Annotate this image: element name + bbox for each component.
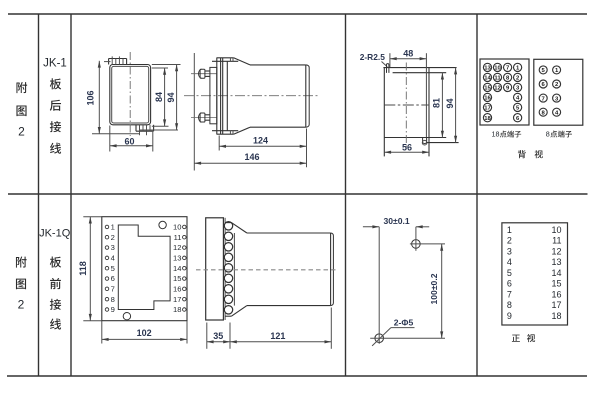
svg-text:11: 11 [552, 236, 561, 246]
svg-text:56: 56 [402, 142, 412, 152]
svg-text:13: 13 [173, 254, 181, 263]
svg-text:1: 1 [111, 223, 115, 232]
svg-text:17: 17 [551, 300, 561, 310]
svg-text:8: 8 [546, 130, 550, 139]
svg-text:8: 8 [507, 300, 512, 310]
svg-text:6: 6 [507, 279, 512, 289]
svg-text:9: 9 [507, 311, 512, 321]
svg-text:7: 7 [507, 289, 512, 299]
svg-text:8: 8 [111, 295, 115, 304]
svg-text:102: 102 [137, 328, 152, 338]
svg-text:JK-1Q: JK-1Q [39, 228, 71, 240]
svg-text:17: 17 [484, 106, 491, 112]
svg-text:17: 17 [173, 295, 181, 304]
svg-text:11: 11 [174, 233, 182, 242]
svg-text:60: 60 [124, 136, 134, 146]
svg-text:10: 10 [494, 66, 501, 72]
svg-text:5: 5 [507, 268, 512, 278]
svg-text:94: 94 [166, 92, 176, 102]
svg-text:100±0.2: 100±0.2 [429, 273, 439, 304]
svg-text:2: 2 [18, 298, 25, 312]
svg-text:15: 15 [173, 274, 181, 283]
svg-text:16: 16 [173, 285, 181, 294]
svg-text:13: 13 [484, 66, 491, 72]
svg-text:146: 146 [244, 152, 259, 162]
svg-text:5: 5 [111, 264, 115, 273]
svg-text:7: 7 [111, 285, 115, 294]
svg-text:16: 16 [484, 96, 491, 102]
svg-text:14: 14 [484, 76, 491, 82]
svg-text:14: 14 [551, 268, 561, 278]
svg-text:81: 81 [432, 98, 442, 108]
svg-text:6: 6 [111, 274, 115, 283]
svg-text:106: 106 [86, 90, 96, 105]
svg-text:11: 11 [494, 76, 501, 82]
svg-text:118: 118 [78, 261, 88, 276]
svg-text:121: 121 [270, 331, 285, 341]
svg-text:18: 18 [551, 311, 561, 321]
svg-text:18: 18 [484, 116, 491, 122]
svg-text:35: 35 [213, 331, 223, 341]
svg-text:4: 4 [507, 257, 512, 267]
svg-text:30±0.1: 30±0.1 [383, 216, 409, 226]
svg-text:18: 18 [173, 305, 181, 314]
svg-text:2: 2 [111, 233, 115, 242]
svg-text:48: 48 [403, 48, 413, 58]
svg-text:84: 84 [154, 92, 164, 102]
svg-text:2-R2.5: 2-R2.5 [360, 52, 385, 62]
svg-text:12: 12 [494, 86, 501, 92]
svg-text:2: 2 [507, 236, 512, 246]
svg-text:16: 16 [551, 289, 561, 299]
svg-text:124: 124 [253, 136, 268, 146]
svg-text:JK-1: JK-1 [43, 58, 67, 70]
svg-text:10: 10 [173, 223, 181, 232]
svg-text:14: 14 [173, 264, 181, 273]
svg-text:3: 3 [507, 246, 512, 256]
svg-text:2-Φ5: 2-Φ5 [394, 317, 414, 327]
svg-text:12: 12 [173, 243, 181, 252]
svg-text:10: 10 [551, 225, 561, 235]
svg-text:1: 1 [507, 225, 512, 235]
svg-text:15: 15 [551, 279, 561, 289]
svg-text:4: 4 [111, 254, 115, 263]
svg-text:3: 3 [111, 243, 115, 252]
svg-text:94: 94 [445, 98, 455, 108]
svg-text:15: 15 [484, 86, 491, 92]
svg-text:9: 9 [111, 305, 115, 314]
svg-text:18: 18 [492, 130, 500, 139]
svg-text:12: 12 [551, 246, 561, 256]
svg-text:13: 13 [551, 257, 561, 267]
svg-text:2: 2 [18, 124, 25, 138]
